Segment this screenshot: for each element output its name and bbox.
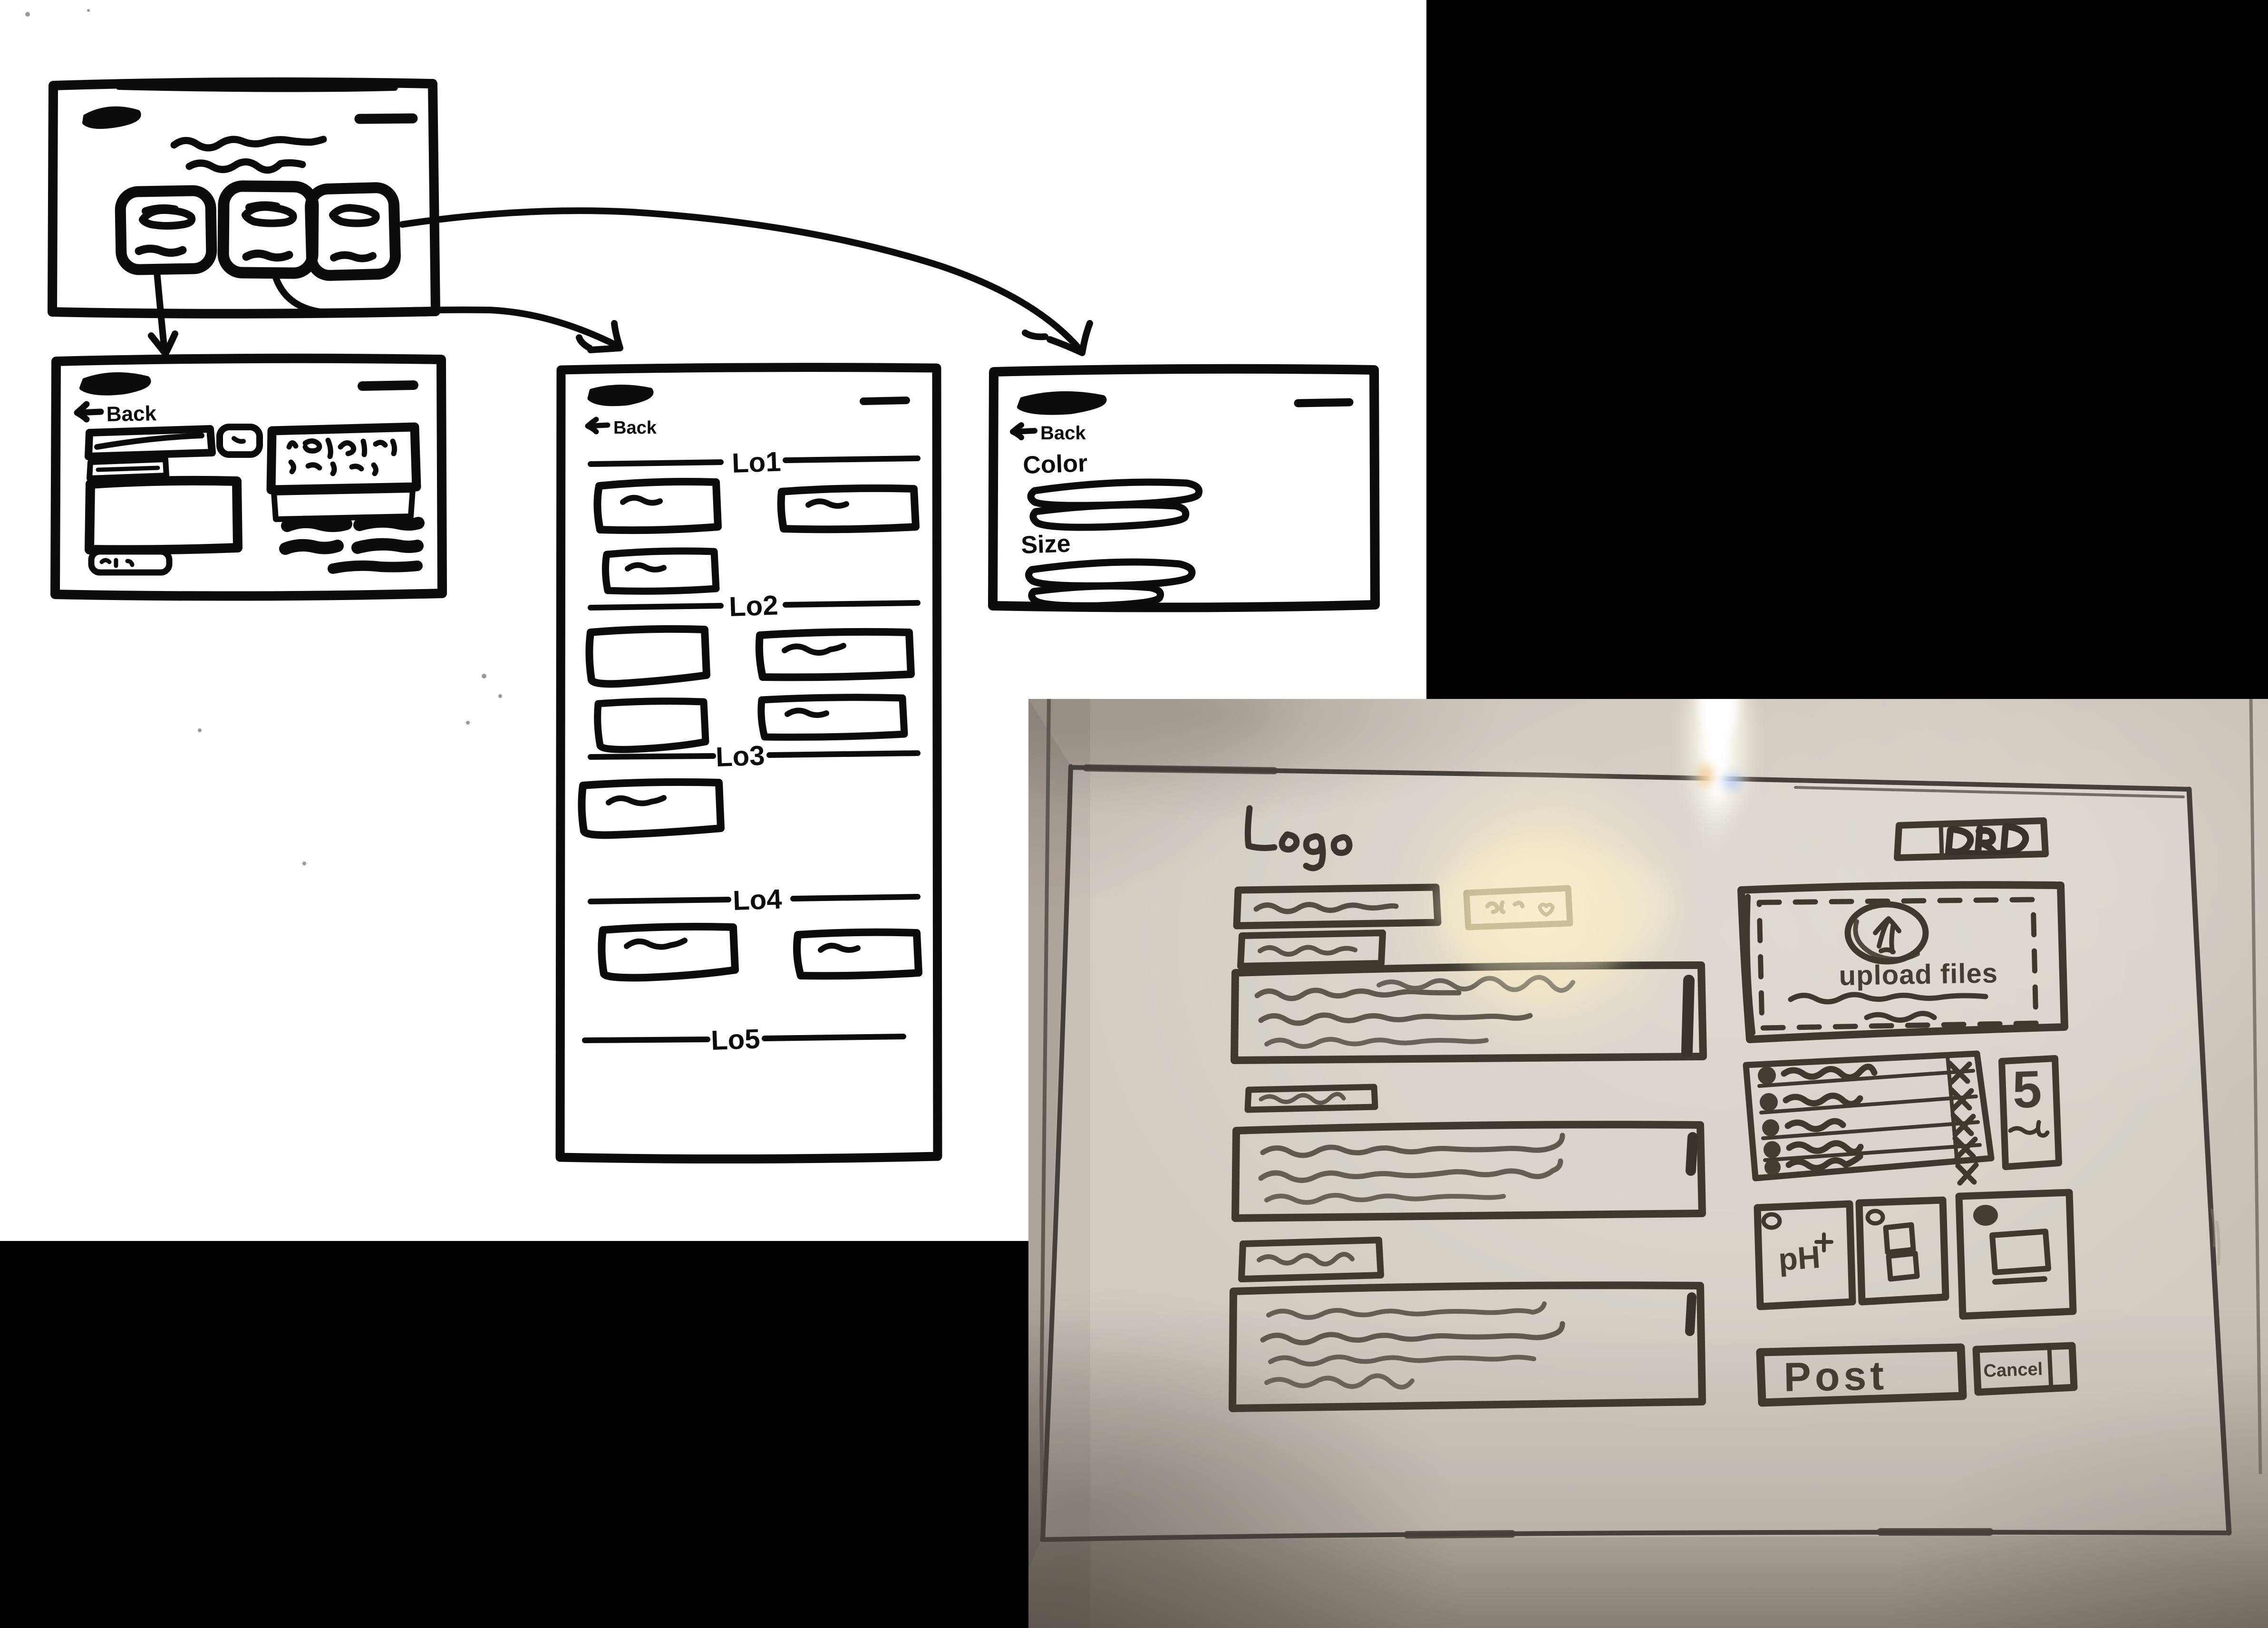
svg-text:Color: Color xyxy=(1022,449,1088,479)
svg-text:pH: pH xyxy=(1777,1239,1822,1277)
svg-text:5: 5 xyxy=(2012,1060,2043,1119)
svg-text:Lo1: Lo1 xyxy=(731,446,781,479)
svg-text:Post: Post xyxy=(1783,1353,1888,1400)
svg-text:Back: Back xyxy=(106,402,157,426)
svg-text:Lo5: Lo5 xyxy=(710,1023,760,1056)
svg-text:Size: Size xyxy=(1020,530,1071,559)
svg-text:Lo2: Lo2 xyxy=(728,590,778,622)
svg-text:Cancel: Cancel xyxy=(1983,1359,2043,1381)
svg-text:upload files: upload files xyxy=(1839,958,1998,991)
svg-text:Lo4: Lo4 xyxy=(732,883,782,916)
svg-text:Back: Back xyxy=(1040,423,1086,444)
svg-text:Lo3: Lo3 xyxy=(715,740,765,773)
svg-text:Back: Back xyxy=(613,418,657,438)
